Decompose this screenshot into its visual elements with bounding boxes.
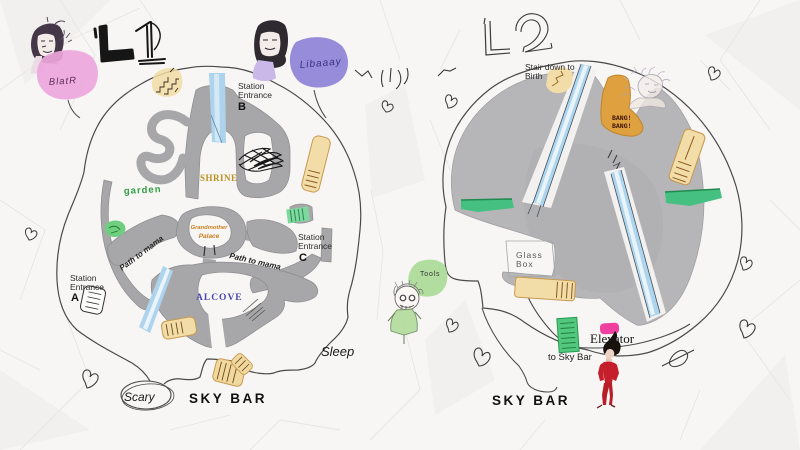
svg-text:Birth: Birth [525, 71, 543, 81]
svg-text:Entrance: Entrance [70, 282, 104, 292]
svg-text:SKY BAR: SKY BAR [189, 391, 267, 406]
svg-text:Entrance: Entrance [298, 241, 332, 251]
svg-text:BlatR: BlatR [48, 75, 77, 88]
svg-text:Palace: Palace [199, 233, 220, 240]
svg-text:Box: Box [516, 259, 534, 269]
svg-text:C: C [299, 252, 307, 264]
svg-text:ALCOVE: ALCOVE [196, 293, 243, 303]
svg-text:Scary: Scary [124, 390, 156, 404]
svg-text:Entrance: Entrance [238, 90, 272, 100]
svg-text:garden: garden [124, 184, 162, 197]
svg-text:BANG!: BANG! [612, 115, 632, 122]
svg-text:Sleep: Sleep [321, 344, 354, 359]
svg-text:BANG!: BANG! [612, 123, 632, 130]
svg-text:B: B [238, 101, 246, 113]
svg-text:Tools: Tools [420, 271, 440, 278]
svg-text:SHRINE: SHRINE [200, 173, 238, 183]
svg-text:to Sky Bar: to Sky Bar [548, 352, 592, 363]
svg-text:Grandmother: Grandmother [191, 225, 228, 231]
svg-text:SKY BAR: SKY BAR [492, 393, 570, 408]
svg-text:A: A [71, 292, 79, 304]
